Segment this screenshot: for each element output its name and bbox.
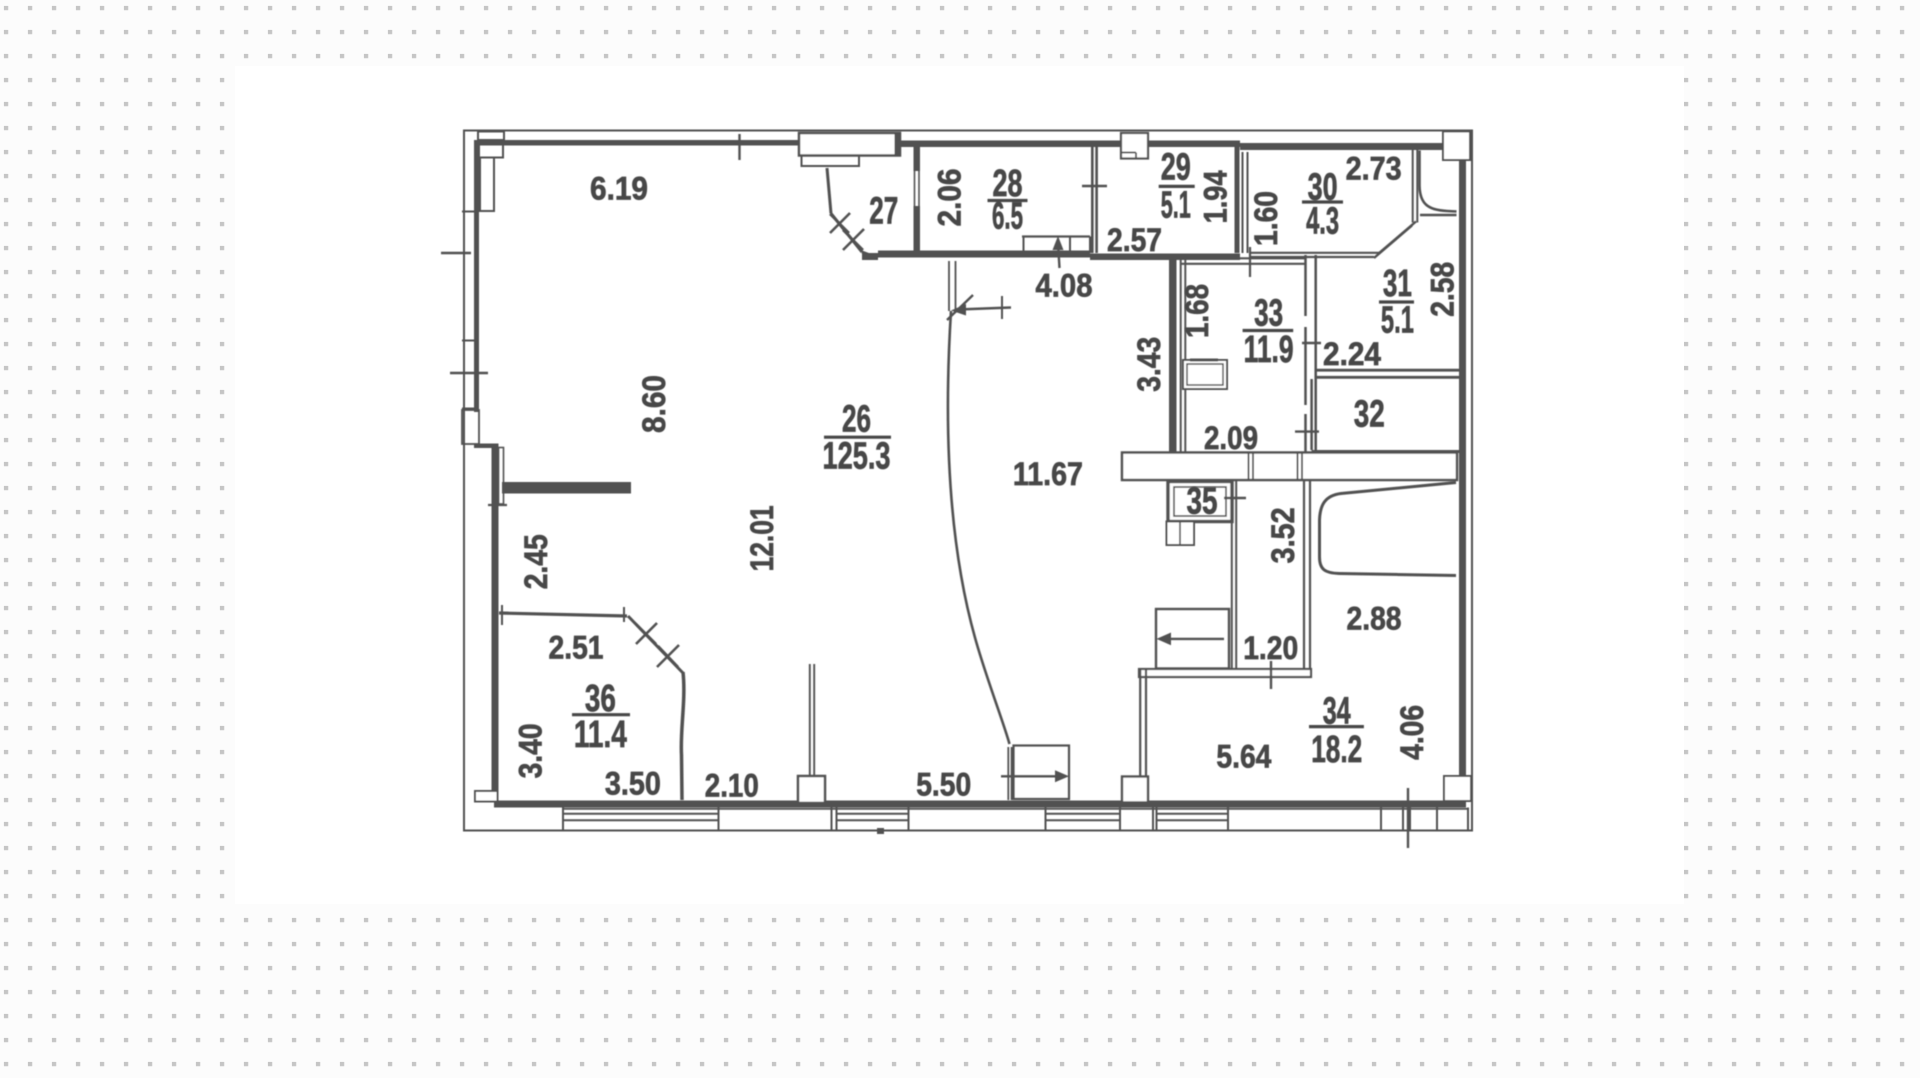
svg-text:26: 26 [842,399,871,441]
svg-text:2.57: 2.57 [1107,222,1162,258]
svg-text:8.60: 8.60 [636,375,672,433]
svg-text:3.40: 3.40 [512,723,548,778]
svg-text:5.50: 5.50 [916,767,971,803]
svg-text:11.67: 11.67 [1013,456,1083,492]
svg-text:27: 27 [869,191,898,233]
svg-text:2.24: 2.24 [1323,336,1381,372]
svg-text:2.88: 2.88 [1347,600,1402,636]
svg-text:6.19: 6.19 [590,171,648,207]
svg-text:3.43: 3.43 [1131,337,1167,392]
svg-text:29: 29 [1161,147,1191,189]
svg-text:125.3: 125.3 [823,436,891,478]
svg-text:1.20: 1.20 [1243,630,1298,666]
svg-text:4.3: 4.3 [1306,201,1339,243]
svg-text:1.60: 1.60 [1248,191,1284,246]
svg-text:11.9: 11.9 [1244,329,1294,371]
svg-text:2.09: 2.09 [1204,420,1258,456]
svg-text:2.51: 2.51 [549,630,604,666]
svg-text:2.73: 2.73 [1346,151,1402,187]
svg-text:4.08: 4.08 [1036,268,1093,304]
svg-text:18.2: 18.2 [1311,729,1362,771]
svg-text:32: 32 [1354,393,1385,435]
svg-text:6.5: 6.5 [992,196,1023,238]
svg-text:2.06: 2.06 [932,169,968,227]
svg-text:2.58: 2.58 [1424,262,1460,317]
svg-text:11.4: 11.4 [574,714,627,756]
svg-text:4.06: 4.06 [1394,705,1430,760]
svg-text:3.50: 3.50 [605,765,661,801]
svg-text:35: 35 [1187,481,1218,523]
svg-text:2.45: 2.45 [518,534,554,589]
svg-text:5.1: 5.1 [1381,299,1414,341]
svg-text:5.1: 5.1 [1161,185,1191,227]
svg-text:1.94: 1.94 [1198,170,1234,223]
svg-text:2.10: 2.10 [705,768,759,804]
svg-text:3.52: 3.52 [1265,507,1301,563]
svg-text:1.68: 1.68 [1179,284,1215,338]
svg-text:5.64: 5.64 [1216,739,1271,775]
svg-text:12.01: 12.01 [744,505,780,571]
